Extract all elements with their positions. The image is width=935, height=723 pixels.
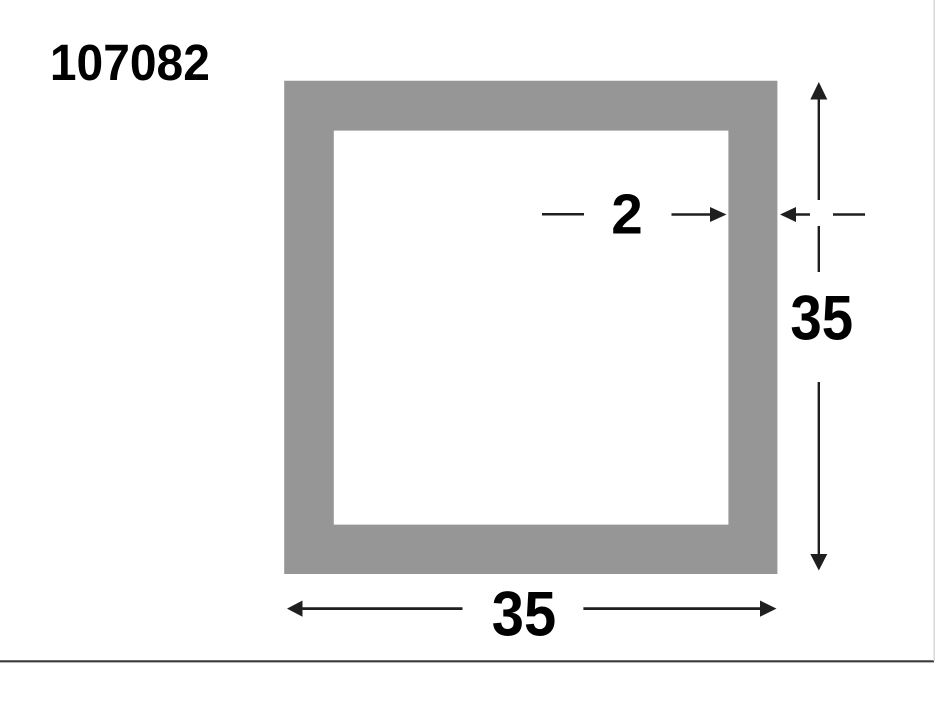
svg-text:35: 35: [492, 580, 556, 650]
svg-text:107082: 107082: [50, 34, 210, 91]
svg-text:35: 35: [790, 284, 853, 354]
svg-text:2: 2: [611, 182, 643, 245]
